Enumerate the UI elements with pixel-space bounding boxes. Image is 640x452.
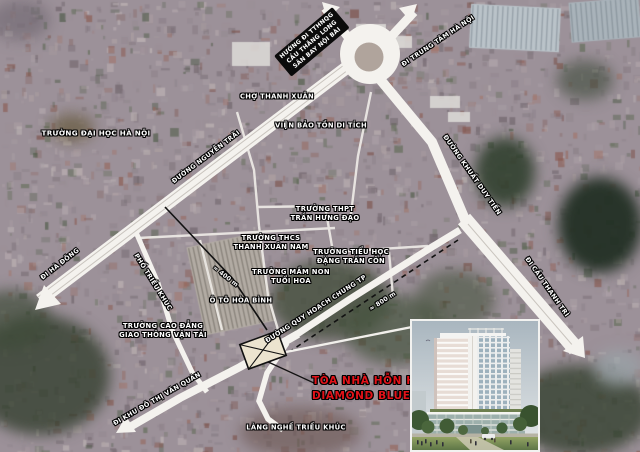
site-marker	[240, 331, 286, 369]
building-render-svg	[412, 321, 538, 450]
location-map: TRƯỜNG ĐẠI HỌC HÀ NỘICHỢ THANH XUÂNHƯỚNG…	[0, 0, 640, 452]
minor-streets	[138, 92, 428, 333]
building-inset-image	[410, 319, 540, 452]
tower	[434, 328, 521, 410]
label-connector-line	[266, 361, 314, 383]
roundabout	[340, 24, 400, 84]
distance-line-400m	[165, 207, 267, 330]
